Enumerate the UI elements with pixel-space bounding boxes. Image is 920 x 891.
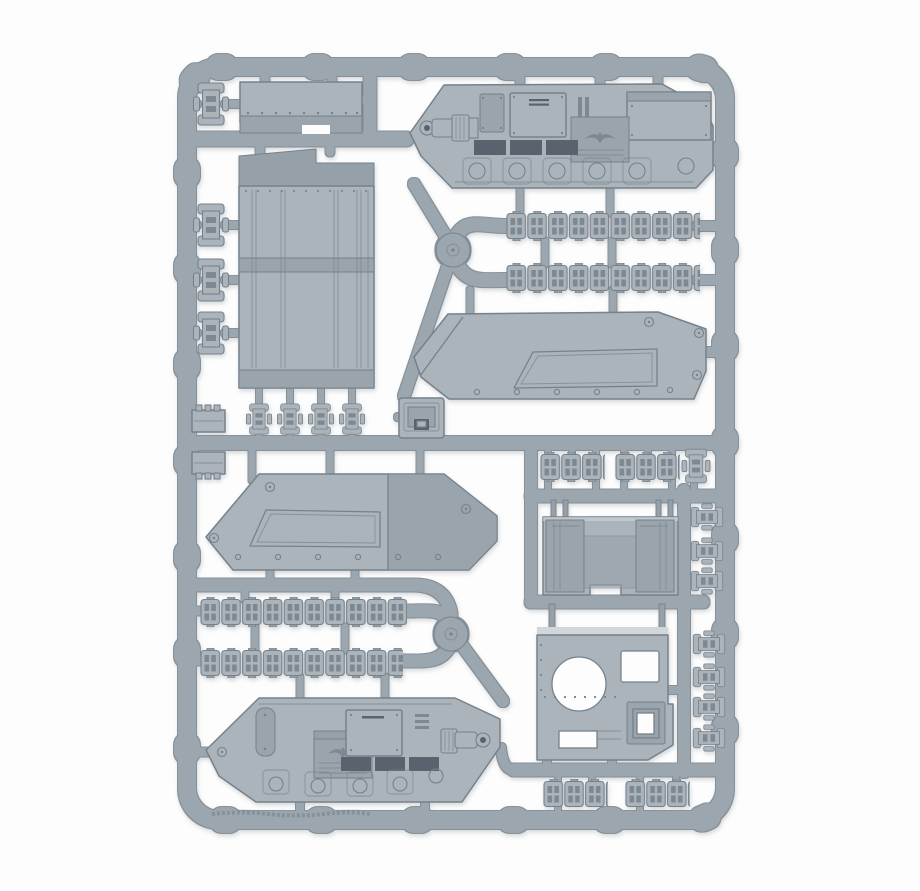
- roof-panel: [240, 82, 362, 134]
- vision-slot-opening: [559, 731, 597, 748]
- photo-stage: [0, 0, 920, 891]
- sprue-photo: [0, 0, 920, 891]
- track-run-lower-1: [200, 597, 407, 627]
- access-hatch: [399, 398, 444, 438]
- turret-plate: [537, 604, 673, 760]
- hull-side-bottom: [206, 698, 500, 802]
- track-link-column-left: [194, 83, 229, 354]
- hull-side-top: [410, 84, 713, 188]
- track-link-single: [682, 449, 710, 483]
- floor-panel-body: [239, 186, 374, 388]
- track-run-short-2: [615, 452, 680, 482]
- track-run-lower-2: [200, 648, 403, 678]
- sprue: [186, 67, 726, 820]
- ramp-recess: [584, 536, 636, 588]
- track-run-short-1: [540, 452, 605, 482]
- junction-hub-bottom: [434, 617, 468, 651]
- coupling-block-a: [192, 405, 225, 432]
- coupling-block-b: [192, 452, 225, 479]
- eagle-panel: [571, 117, 629, 162]
- floor-panel: [239, 149, 374, 388]
- track-run-upper-2: [506, 263, 700, 293]
- track-run-short-3: [543, 779, 608, 807]
- junction-hub-top: [436, 233, 470, 267]
- turret-ring-opening: [552, 657, 606, 711]
- small-hatch: [627, 702, 665, 744]
- inner-panel-right: [414, 312, 706, 399]
- inner-panel-left: [206, 474, 497, 570]
- hatch-opening: [621, 651, 659, 682]
- track-run-short-4: [625, 779, 690, 807]
- track-run-upper-1: [506, 211, 700, 241]
